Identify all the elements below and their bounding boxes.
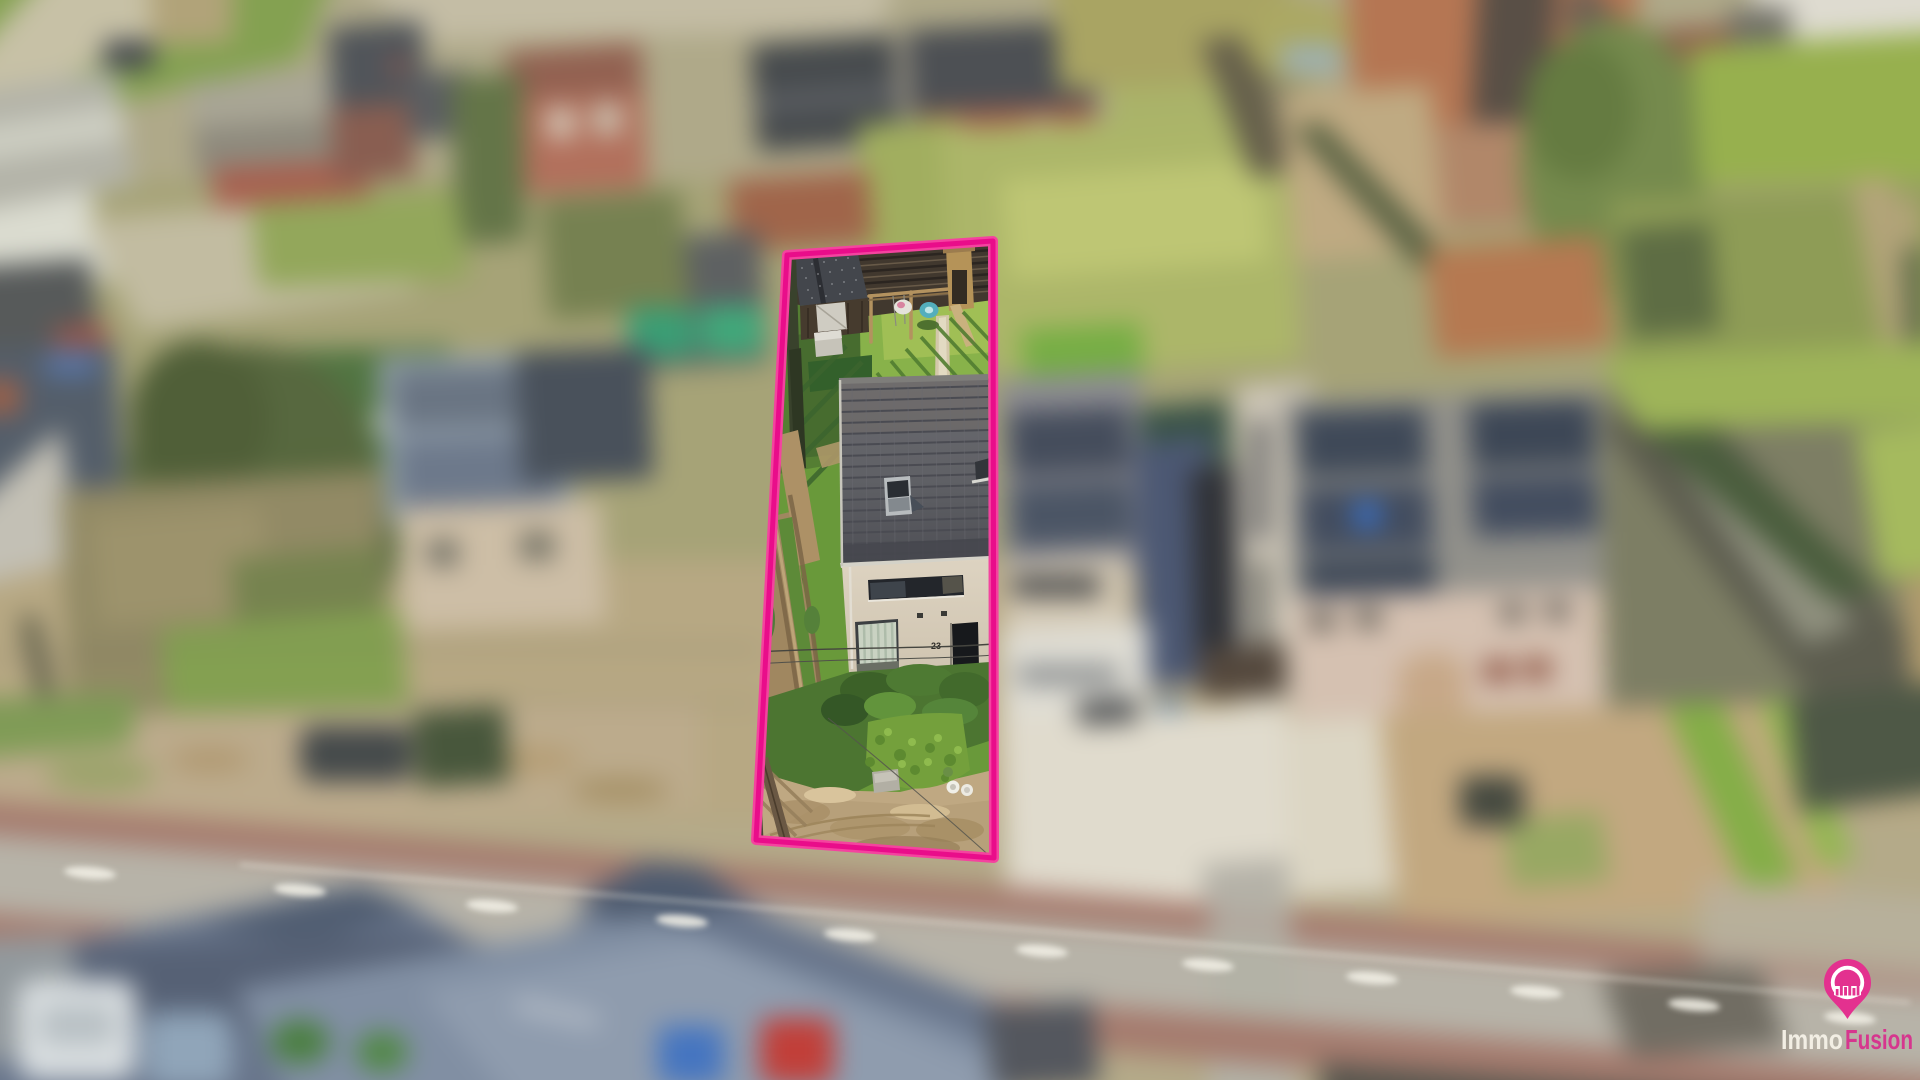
svg-text:Fusion: Fusion bbox=[1845, 1024, 1913, 1055]
svg-text:Immo: Immo bbox=[1781, 1024, 1843, 1055]
